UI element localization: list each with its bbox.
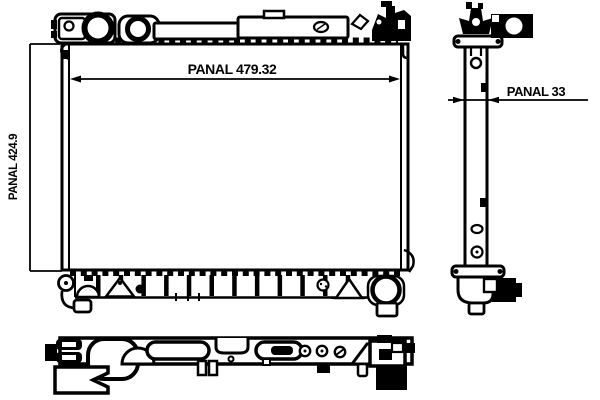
bottom-outlet-pipe <box>376 366 407 390</box>
bottom-view <box>45 335 415 393</box>
radiator-core <box>61 44 408 270</box>
depth-dimension: PANAL 33 <box>448 84 588 103</box>
outlet-port <box>368 276 404 316</box>
technical-drawing-canvas: PANAL 479.32 PANAL 424.9 <box>0 0 600 400</box>
side-bottom-tank <box>452 266 522 314</box>
width-dimension-label: PANAL 479.32 <box>188 61 277 77</box>
radiator-drawing: PANAL 479.32 PANAL 424.9 <box>0 0 600 400</box>
side-mount-bracket <box>491 14 533 38</box>
side-view: PANAL 33 <box>448 2 588 314</box>
height-dimension-label: PANAL 424.9 <box>8 134 20 200</box>
drain-assembly <box>59 275 100 312</box>
height-dimension: PANAL 424.9 <box>8 44 62 271</box>
depth-dimension-label: PANAL 33 <box>507 84 566 99</box>
filler-cap <box>85 15 112 42</box>
front-view: PANAL 479.32 PANAL 424.9 <box>8 1 414 316</box>
inlet-port <box>128 19 149 40</box>
